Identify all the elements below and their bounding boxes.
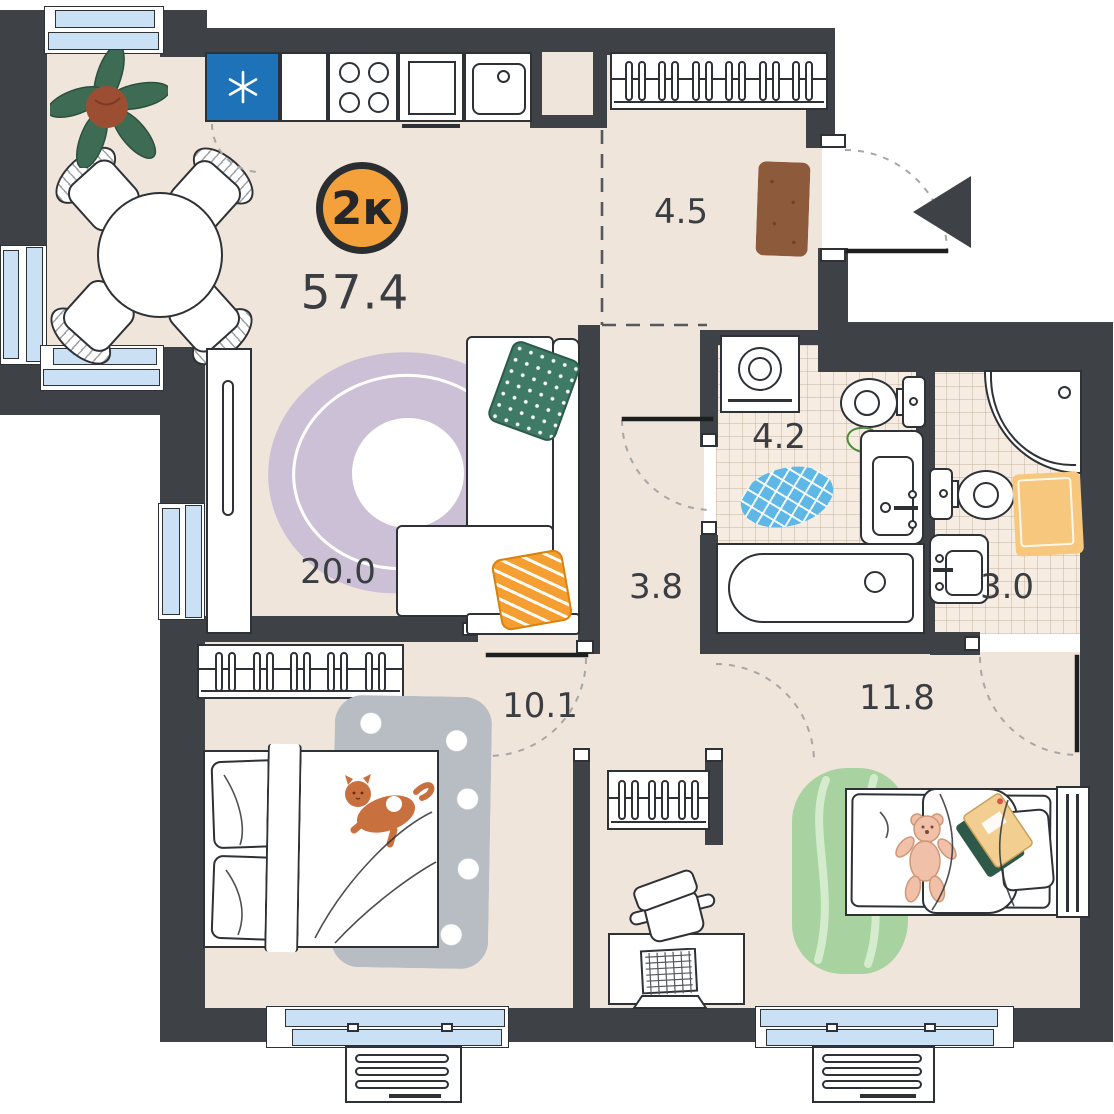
- teddy-bear: [885, 805, 957, 907]
- jamb-bedroom-wall-top: [573, 748, 590, 762]
- jamb-toilet-door: [964, 636, 980, 651]
- wall-shaft-bottom: [530, 115, 607, 128]
- wall-living-right: [578, 325, 600, 654]
- jamb-kids-wall-top: [705, 748, 723, 762]
- washing-machine: [720, 335, 800, 413]
- burner: [339, 62, 360, 83]
- wall-bedroom-right: [573, 748, 590, 1008]
- stove: [328, 52, 398, 122]
- door-swing-entrance: [845, 150, 947, 252]
- wall-right-exterior: [1080, 330, 1113, 1042]
- tv-stand: [206, 348, 252, 634]
- tv: [222, 380, 234, 516]
- snowflake-icon: [226, 70, 260, 104]
- jamb-bath-bottom: [701, 521, 717, 535]
- type-badge: 2к: [316, 162, 408, 254]
- wall-bay-top-left: [0, 10, 50, 52]
- faucet: [497, 70, 510, 83]
- laptop: [632, 948, 708, 1010]
- wall-left-exterior: [160, 388, 205, 1010]
- kids-bed-headboard: [1056, 786, 1090, 918]
- window-living-left: [158, 503, 205, 620]
- drain: [864, 571, 886, 593]
- oven-handle: [402, 124, 460, 128]
- radiator: [345, 1046, 462, 1103]
- drain: [1058, 386, 1071, 399]
- room-area-label-hallway: 4.5: [654, 192, 708, 232]
- floor-plan: 2к 57.4: [0, 0, 1114, 1114]
- toilet: [929, 466, 1021, 526]
- jamb-entrance-top: [820, 134, 846, 148]
- room-area-label-living: 20.0: [300, 552, 376, 592]
- jamb-living-right-end: [576, 640, 594, 654]
- dining-table: [97, 192, 223, 318]
- blanket-fold: [264, 744, 302, 953]
- oven: [398, 52, 464, 122]
- room-area-label-bathroom: 4.2: [752, 417, 806, 457]
- plant: [50, 50, 168, 168]
- window-bedroom-bottom: [266, 1006, 509, 1048]
- book: [952, 788, 1044, 880]
- kitchen-sink: [464, 52, 532, 122]
- kitchen-counter: [280, 52, 328, 122]
- wardrobe: [197, 644, 404, 699]
- cat-illustration: [328, 762, 440, 854]
- type-badge-label: 2к: [331, 182, 393, 235]
- bathtub: [716, 543, 925, 634]
- faucet: [935, 554, 944, 563]
- room-area-label-bedroom: 10.1: [502, 686, 578, 726]
- wall-bay-bottom: [0, 388, 165, 415]
- entrance-arrow-icon: [913, 176, 971, 248]
- faucet: [880, 502, 891, 513]
- burner: [339, 92, 360, 113]
- rug-living-center: [352, 418, 464, 528]
- doormat: [755, 161, 810, 257]
- jamb-bath-top: [701, 433, 717, 447]
- floor-shaft: [542, 52, 593, 115]
- room-area-label-kids: 11.8: [859, 678, 935, 718]
- toilet-mat: [1012, 471, 1084, 556]
- wardrobe-small: [607, 770, 710, 830]
- wall-kitchen-top: [197, 28, 610, 55]
- window-kids-bottom: [755, 1006, 1014, 1048]
- window-bay-top: [44, 6, 164, 54]
- wall-hall-top: [607, 28, 835, 52]
- fridge: [205, 52, 280, 122]
- pillow-orange: [490, 548, 573, 631]
- room-area-label-toilet: 3.0: [980, 567, 1034, 607]
- radiator: [812, 1046, 935, 1103]
- burner: [368, 92, 389, 113]
- total-area-label: 57.4: [301, 266, 410, 321]
- room-area-label-corridor: 3.8: [629, 567, 683, 607]
- wall-top-right-band: [818, 322, 1113, 372]
- coat-rack: [610, 52, 828, 110]
- wall-bath-left-upper: [700, 330, 718, 447]
- burner: [368, 62, 389, 83]
- jamb-entrance-bottom: [820, 248, 846, 262]
- bathroom-sink: [860, 430, 924, 545]
